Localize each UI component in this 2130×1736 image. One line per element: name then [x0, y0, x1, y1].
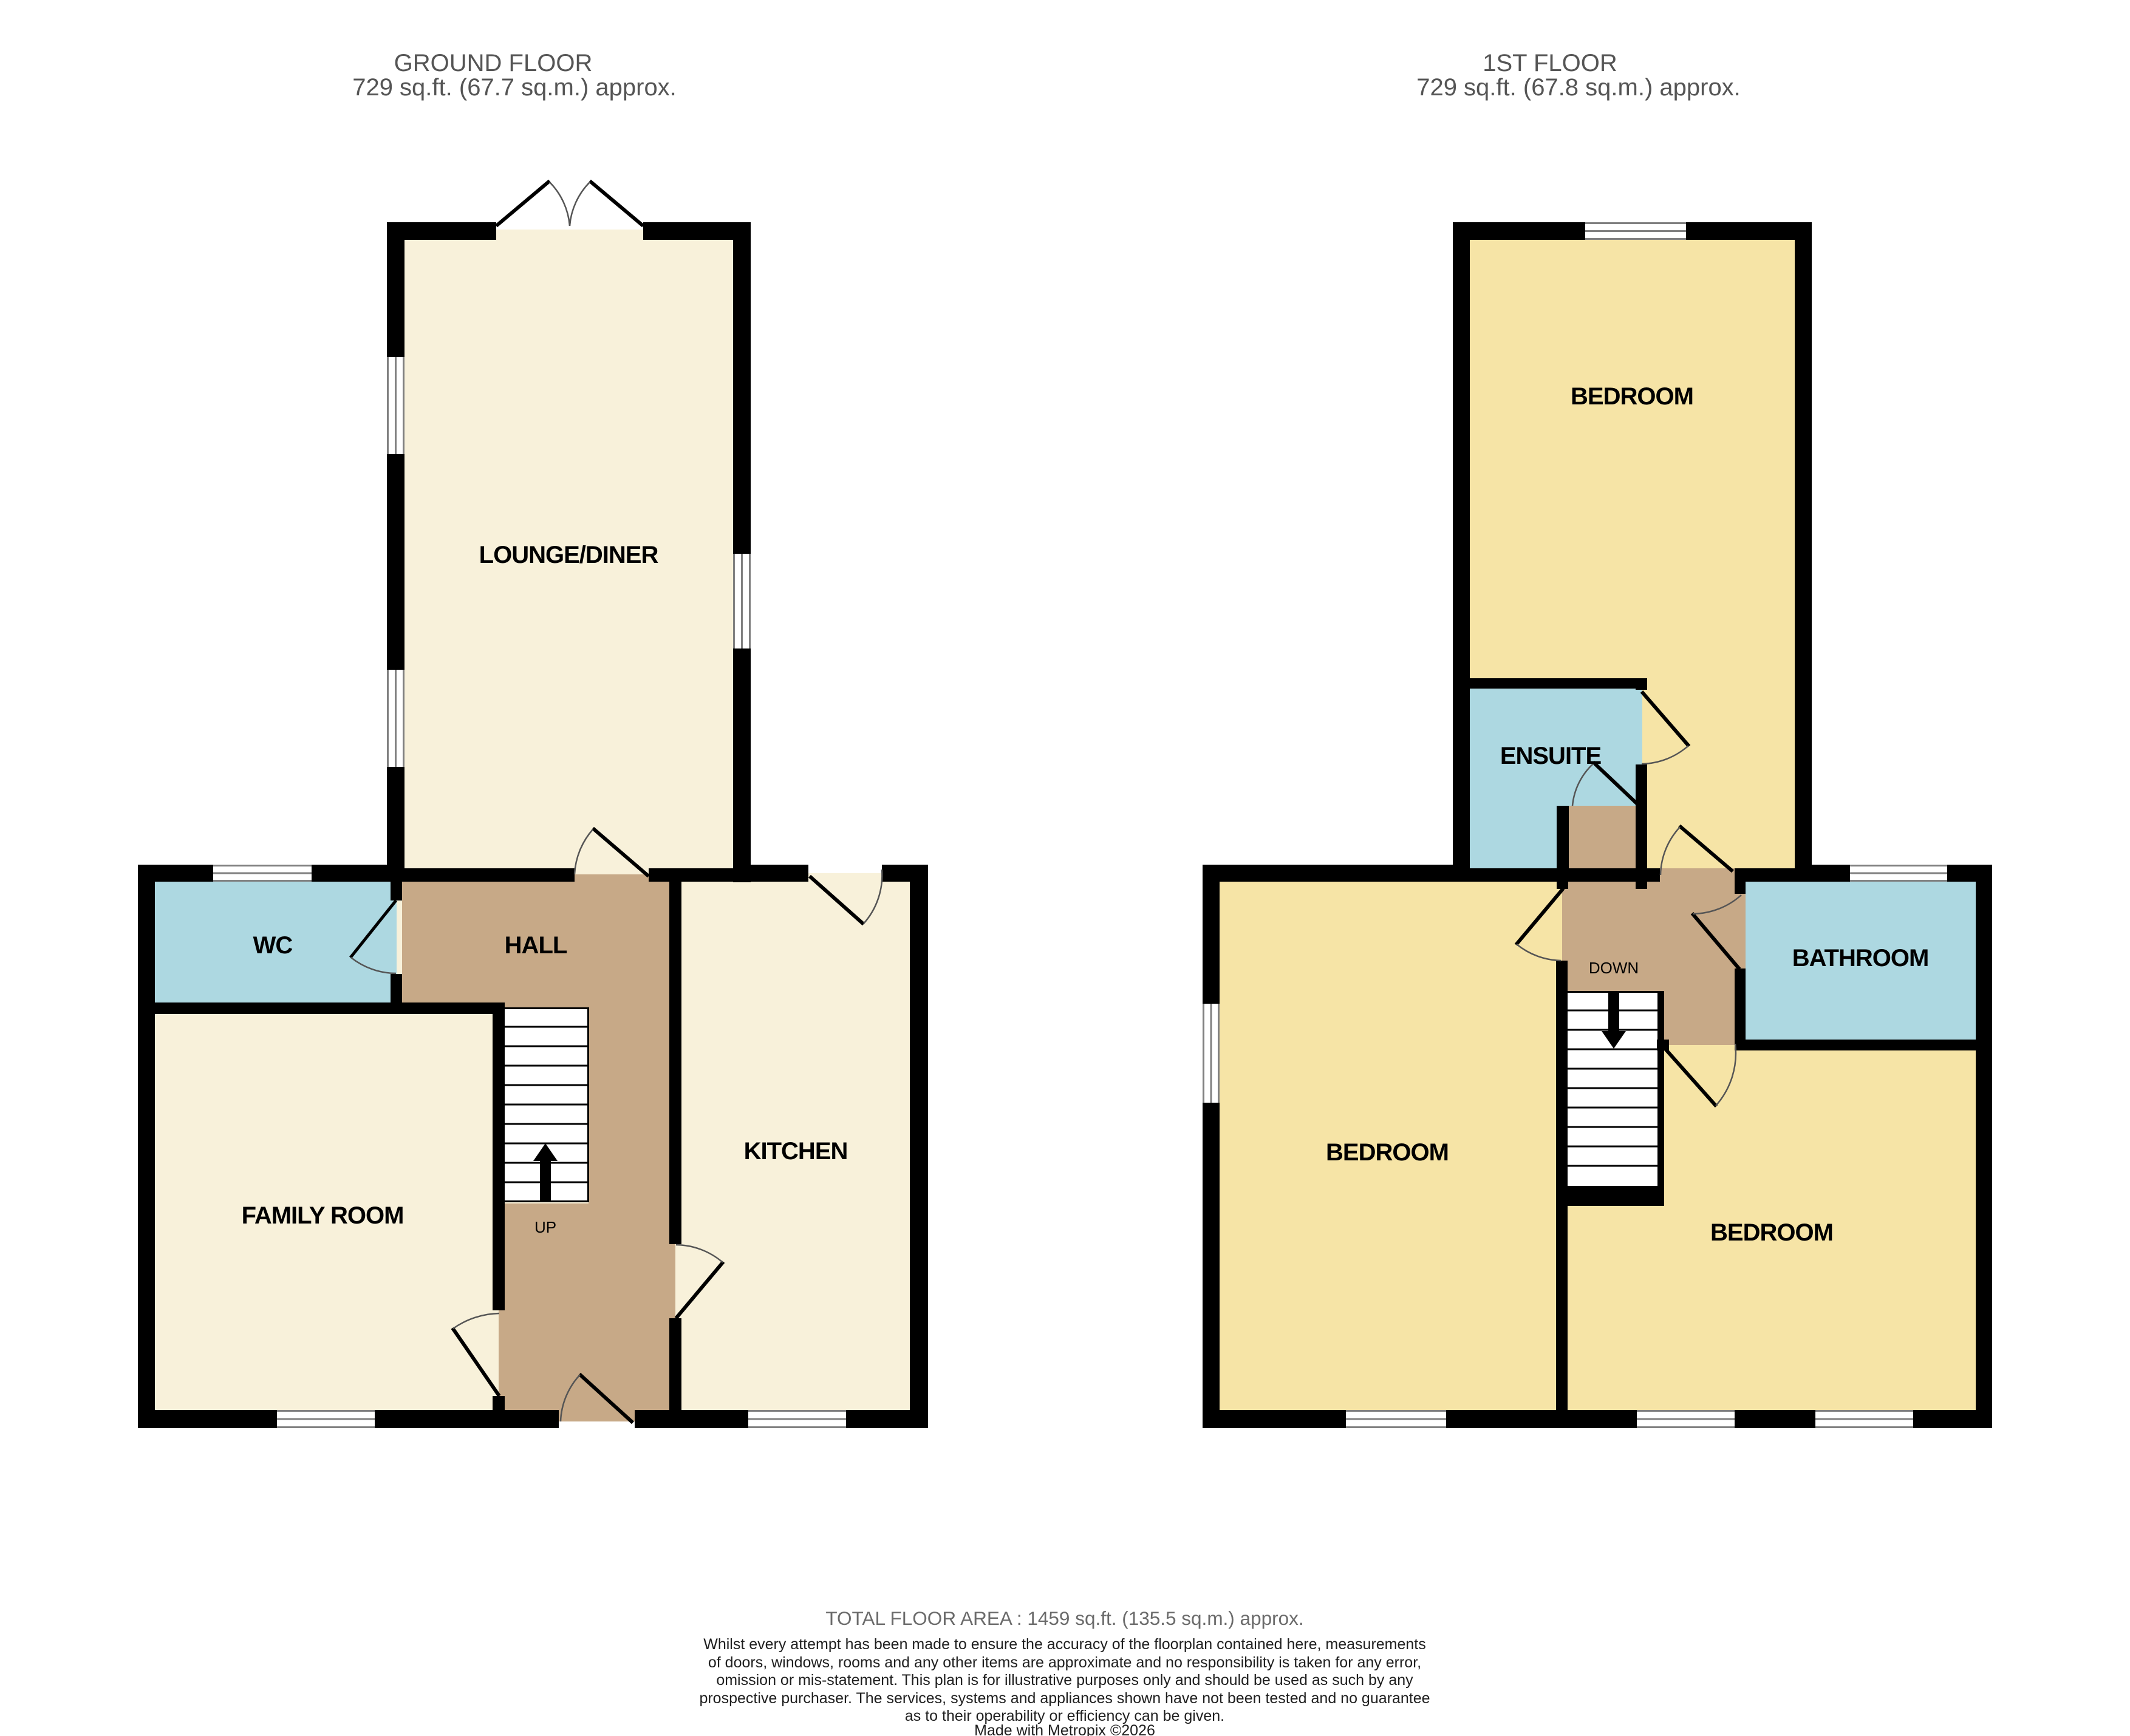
svg-text:DOWN: DOWN [1589, 959, 1639, 977]
svg-text:Whilst every attempt has been: Whilst every attempt has been made to en… [703, 1636, 1426, 1653]
svg-text:UP: UP [534, 1218, 556, 1236]
svg-text:729 sq.ft. (67.7 sq.m.) approx: 729 sq.ft. (67.7 sq.m.) approx. [352, 74, 677, 101]
svg-text:TOTAL FLOOR AREA : 1459 sq.ft.: TOTAL FLOOR AREA : 1459 sq.ft. (135.5 sq… [825, 1607, 1303, 1629]
svg-text:1ST FLOOR: 1ST FLOOR [1483, 50, 1617, 77]
svg-text:LOUNGE/DINER: LOUNGE/DINER [479, 542, 659, 568]
svg-text:prospective purchaser. The ser: prospective purchaser. The services, sys… [699, 1690, 1430, 1707]
svg-text:BEDROOM: BEDROOM [1326, 1139, 1449, 1166]
svg-text:KITCHEN: KITCHEN [744, 1138, 848, 1165]
svg-text:BEDROOM: BEDROOM [1571, 383, 1693, 410]
svg-text:Made with Metropix ©2026: Made with Metropix ©2026 [974, 1722, 1155, 1736]
svg-text:omission or mis-statement. Thi: omission or mis-statement. This plan is … [716, 1672, 1413, 1689]
svg-text:FAMILY ROOM: FAMILY ROOM [242, 1202, 404, 1229]
svg-text:HALL: HALL [505, 932, 567, 959]
svg-text:729 sq.ft. (67.8 sq.m.) approx: 729 sq.ft. (67.8 sq.m.) approx. [1416, 74, 1741, 101]
svg-text:WC: WC [253, 932, 293, 959]
svg-text:GROUND FLOOR: GROUND FLOOR [394, 50, 593, 77]
svg-text:BATHROOM: BATHROOM [1792, 945, 1929, 972]
svg-text:BEDROOM: BEDROOM [1710, 1219, 1833, 1246]
svg-text:ENSUITE: ENSUITE [1500, 743, 1602, 769]
svg-text:of doors, windows, rooms and a: of doors, windows, rooms and any other i… [708, 1654, 1421, 1671]
